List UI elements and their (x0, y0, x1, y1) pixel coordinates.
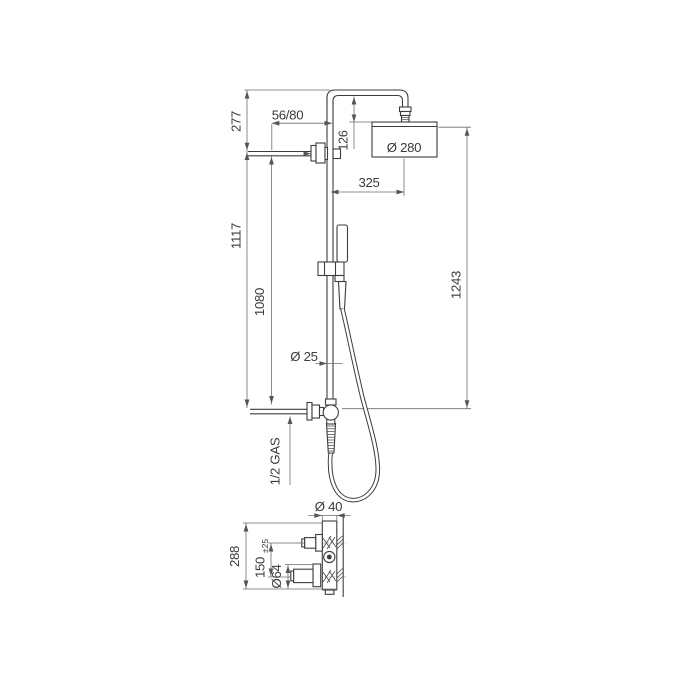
dim-150-tolerance-label: ±25 (260, 539, 270, 553)
dim-126: 126 (337, 97, 373, 151)
dim-325-label: 325 (358, 175, 379, 190)
dim-288-label: 288 (227, 546, 242, 567)
dim-56-80-label: 56/80 (272, 108, 304, 123)
dia-64-label: Ø64 (269, 564, 284, 588)
hose-guard (327, 424, 336, 454)
dia-40-label: Ø 40 (315, 499, 342, 514)
mixer-body (322, 521, 343, 594)
dim-1243: 1243 (439, 127, 472, 409)
drawing-canvas: 277 1117 56/80 126 Ø 280 325 1243 1 (0, 0, 700, 700)
dim-40: Ø 40 (308, 499, 351, 521)
dia-25-label: Ø 25 (290, 349, 317, 364)
dim-1243-label: 1243 (449, 271, 464, 299)
dim-126-label: 126 (337, 130, 351, 150)
wall-supply-lower (250, 399, 338, 424)
gas-label: 1/2 GAS (268, 437, 283, 485)
dim-280: Ø 280 (387, 140, 421, 155)
dia-280-label: Ø 280 (387, 140, 421, 155)
head-connector (400, 107, 412, 122)
dim-1117-label: 1117 (229, 223, 244, 249)
mixer-detail (288, 517, 346, 597)
label-gas: 1/2 GAS (268, 417, 293, 486)
slider-bracket (318, 262, 344, 282)
dim-1080-label: 1080 (252, 288, 267, 316)
dim-1080: 1080 (252, 156, 274, 405)
dim-25: Ø 25 (290, 349, 342, 366)
shower-system-technical-drawing: 277 1117 56/80 126 Ø 280 325 1243 1 (0, 0, 700, 700)
dim-325: 325 (331, 159, 404, 197)
dim-277-label: 277 (229, 111, 244, 132)
dim-150-label: 150 (253, 557, 268, 578)
shower-hose (330, 309, 378, 500)
diverter-valve (323, 405, 338, 420)
